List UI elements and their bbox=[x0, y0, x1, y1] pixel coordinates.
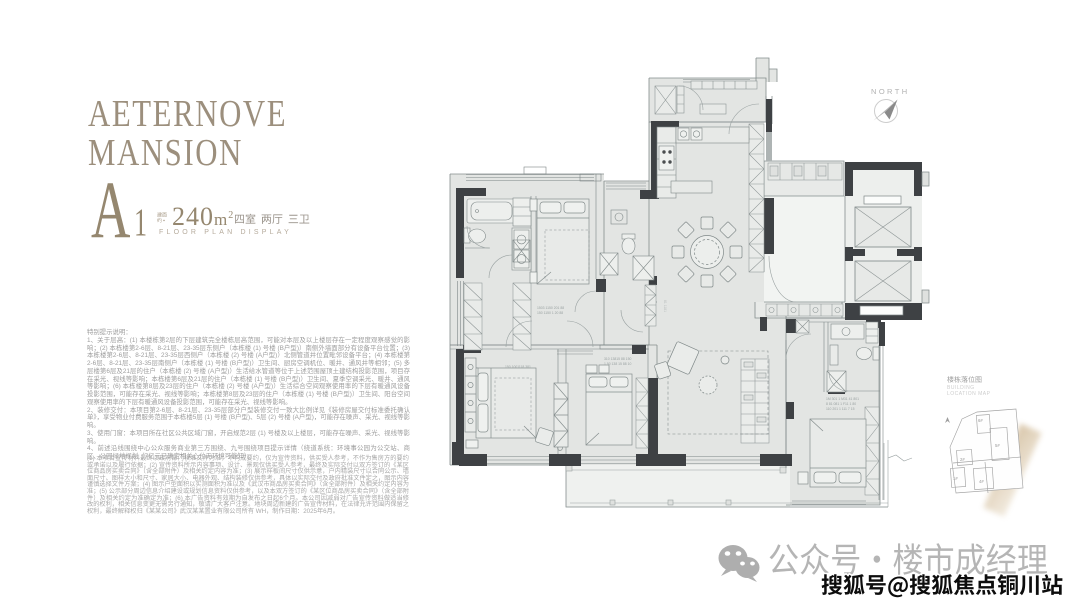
svg-text:81 1181: 81 1181 bbox=[663, 300, 667, 312]
svg-text:1503 1150 201 88: 1503 1150 201 88 bbox=[537, 306, 564, 310]
svg-text:4#: 4# bbox=[979, 479, 984, 484]
svg-text:150 1150 1 20 88: 150 1150 1 20 88 bbox=[537, 311, 563, 315]
svg-text:1 50 138 15 88 10: 1 50 138 15 88 10 bbox=[604, 362, 631, 366]
svg-text:1M 301 1 M31 41 801: 1M 301 1 M31 41 801 bbox=[826, 397, 859, 401]
svg-text:5#: 5# bbox=[995, 443, 1000, 448]
svg-text:1#: 1# bbox=[953, 476, 958, 481]
svg-text:150 1001118 381: 150 1001118 381 bbox=[505, 365, 531, 369]
svg-text:310 13815 88 150: 310 13815 88 150 bbox=[604, 357, 631, 361]
svg-text:6#: 6# bbox=[978, 418, 983, 423]
svg-text:110 201 1 111 7 15: 110 201 1 111 7 15 bbox=[826, 407, 855, 411]
svg-text:8 81 081 1 F11 1 80: 8 81 081 1 F11 1 80 bbox=[826, 402, 856, 406]
svg-text:2#: 2# bbox=[960, 457, 965, 462]
svg-text:NORTH: NORTH bbox=[871, 87, 910, 96]
